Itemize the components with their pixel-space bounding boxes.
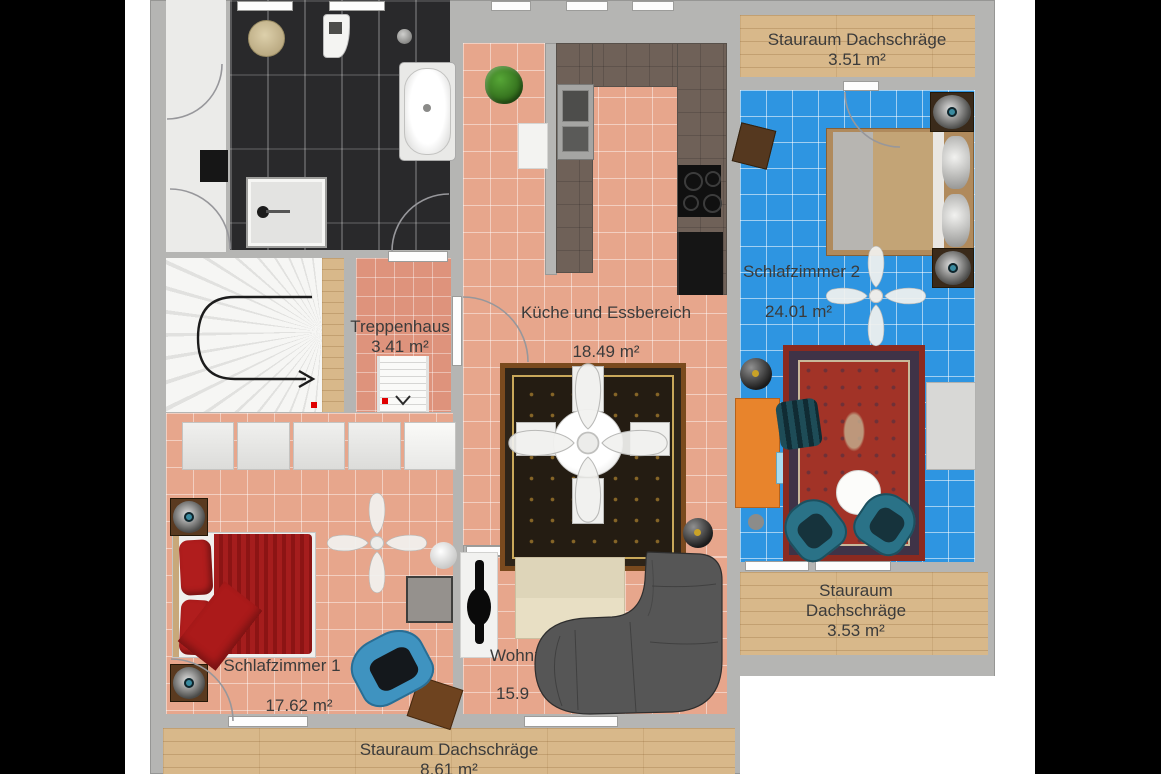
shower-arm bbox=[266, 210, 290, 213]
room-label-schlafzimmer-1: Schlafzimmer 1 bbox=[223, 656, 340, 676]
burner bbox=[684, 172, 703, 191]
room-label-schlafzimmer-2: Schlafzimmer 2 bbox=[743, 262, 860, 282]
room-name: Schlafzimmer 2 bbox=[743, 262, 860, 281]
room-area: 24.01 m² bbox=[765, 302, 832, 321]
bed2-blanket-gray bbox=[833, 132, 873, 250]
bed2-blanket-tan bbox=[873, 132, 933, 250]
closet-door bbox=[237, 422, 289, 470]
window bbox=[815, 561, 891, 571]
window bbox=[745, 561, 809, 571]
letterbox-left bbox=[0, 0, 125, 774]
window bbox=[228, 716, 308, 727]
bed1-pillow bbox=[179, 539, 214, 596]
plant bbox=[485, 66, 523, 104]
ball-lamp bbox=[430, 542, 457, 569]
room-area: 18.49 m² bbox=[572, 342, 639, 361]
room-label-stauraum-bottom: Stauraum Dachschräge 8.61 m² bbox=[360, 740, 539, 774]
sink-basin bbox=[562, 126, 589, 152]
room-name: Stauraum Dachschräge bbox=[360, 740, 539, 760]
dining-chair bbox=[572, 366, 604, 412]
room-label-stauraum-top: Stauraum Dachschräge 3.51 m² bbox=[768, 30, 947, 70]
letterbox-right bbox=[1035, 0, 1161, 774]
room-area-schlafzimmer-1: 17.62 m² bbox=[265, 696, 332, 716]
bed2-pillow bbox=[942, 194, 970, 247]
small-rug bbox=[518, 123, 548, 169]
burner bbox=[683, 195, 699, 211]
tv-center bbox=[467, 588, 491, 626]
closet-door bbox=[293, 422, 345, 470]
bath-sink-small bbox=[397, 29, 412, 44]
dining-chair bbox=[572, 478, 604, 524]
living-rug bbox=[515, 557, 625, 639]
wall-speaker bbox=[930, 92, 974, 132]
bed2-pillow bbox=[942, 136, 970, 189]
desk-orange bbox=[735, 398, 780, 508]
room-area: 3.53 m² bbox=[781, 621, 931, 641]
stairs-mark-red bbox=[382, 398, 388, 404]
dresser bbox=[926, 382, 976, 470]
dining-table bbox=[553, 409, 623, 477]
closet-door bbox=[182, 422, 234, 470]
square-table bbox=[406, 576, 453, 623]
room-area: 3.41 m² bbox=[350, 337, 450, 357]
burner bbox=[705, 171, 721, 187]
floor-ball-small bbox=[748, 514, 764, 530]
window bbox=[524, 716, 618, 727]
wall-speaker bbox=[170, 498, 208, 536]
room-stairs bbox=[166, 258, 322, 412]
door-threshold bbox=[843, 81, 879, 91]
room-area: 15.9 bbox=[496, 684, 529, 703]
room-area-kueche: 18.49 m² bbox=[572, 342, 639, 362]
room-name: Küche und Essbereich bbox=[521, 303, 691, 322]
window bbox=[237, 1, 293, 11]
window bbox=[566, 1, 608, 11]
wall-speaker bbox=[932, 248, 974, 288]
toilet-tank bbox=[329, 22, 342, 34]
window bbox=[329, 1, 385, 11]
closet-row bbox=[182, 422, 456, 470]
floor-plan-viewer: { "rooms": { "stauraum_top": {"name": "S… bbox=[0, 0, 1161, 774]
door-threshold bbox=[388, 251, 448, 262]
dining-chair bbox=[630, 422, 670, 456]
room-label-stauraum-right: Stauraum Dachschräge 3.53 m² bbox=[781, 581, 931, 641]
room-area: 3.51 m² bbox=[768, 50, 947, 70]
burner bbox=[703, 194, 722, 213]
wall-speaker bbox=[170, 664, 208, 702]
plan-cutout-bottom-right bbox=[740, 676, 995, 774]
dining-chair bbox=[516, 422, 556, 456]
bath-round-rug bbox=[248, 20, 285, 57]
door-threshold bbox=[452, 296, 462, 366]
room-area: 8.61 m² bbox=[360, 760, 539, 774]
sink-basin bbox=[562, 90, 589, 122]
room-corridor bbox=[166, 0, 226, 252]
room-area: 17.62 m² bbox=[265, 696, 332, 715]
room-name: Schlafzimmer 1 bbox=[223, 656, 340, 675]
room-name: Stauraum Dachschräge bbox=[768, 30, 947, 50]
room-label-treppenhaus: Treppenhaus 3.41 m² bbox=[350, 317, 450, 357]
room-area-wohnzimmer: 15.9 bbox=[496, 684, 529, 704]
closet-door bbox=[348, 422, 400, 470]
room-name: Stauraum Dachschräge bbox=[781, 581, 931, 621]
room-area-schlafzimmer-2: 24.01 m² bbox=[765, 302, 832, 322]
room-name: Wohnzimmer bbox=[490, 646, 590, 665]
desk-chair bbox=[775, 397, 823, 450]
floor-speaker-dot bbox=[752, 370, 759, 377]
utility-box bbox=[200, 150, 228, 182]
stairs-mark-red bbox=[311, 402, 317, 408]
closet-door bbox=[404, 422, 456, 470]
room-label-wohnzimmer: Wohnzimmer bbox=[490, 646, 590, 666]
room-name: Treppenhaus bbox=[350, 317, 450, 337]
window bbox=[632, 1, 674, 11]
floor-speaker-dot bbox=[694, 529, 701, 536]
fridge bbox=[677, 232, 723, 295]
window bbox=[491, 1, 531, 11]
room-label-kueche: Küche und Essbereich bbox=[521, 303, 691, 323]
bathtub-drain bbox=[423, 104, 431, 112]
stairs-wood-edge bbox=[322, 258, 344, 412]
